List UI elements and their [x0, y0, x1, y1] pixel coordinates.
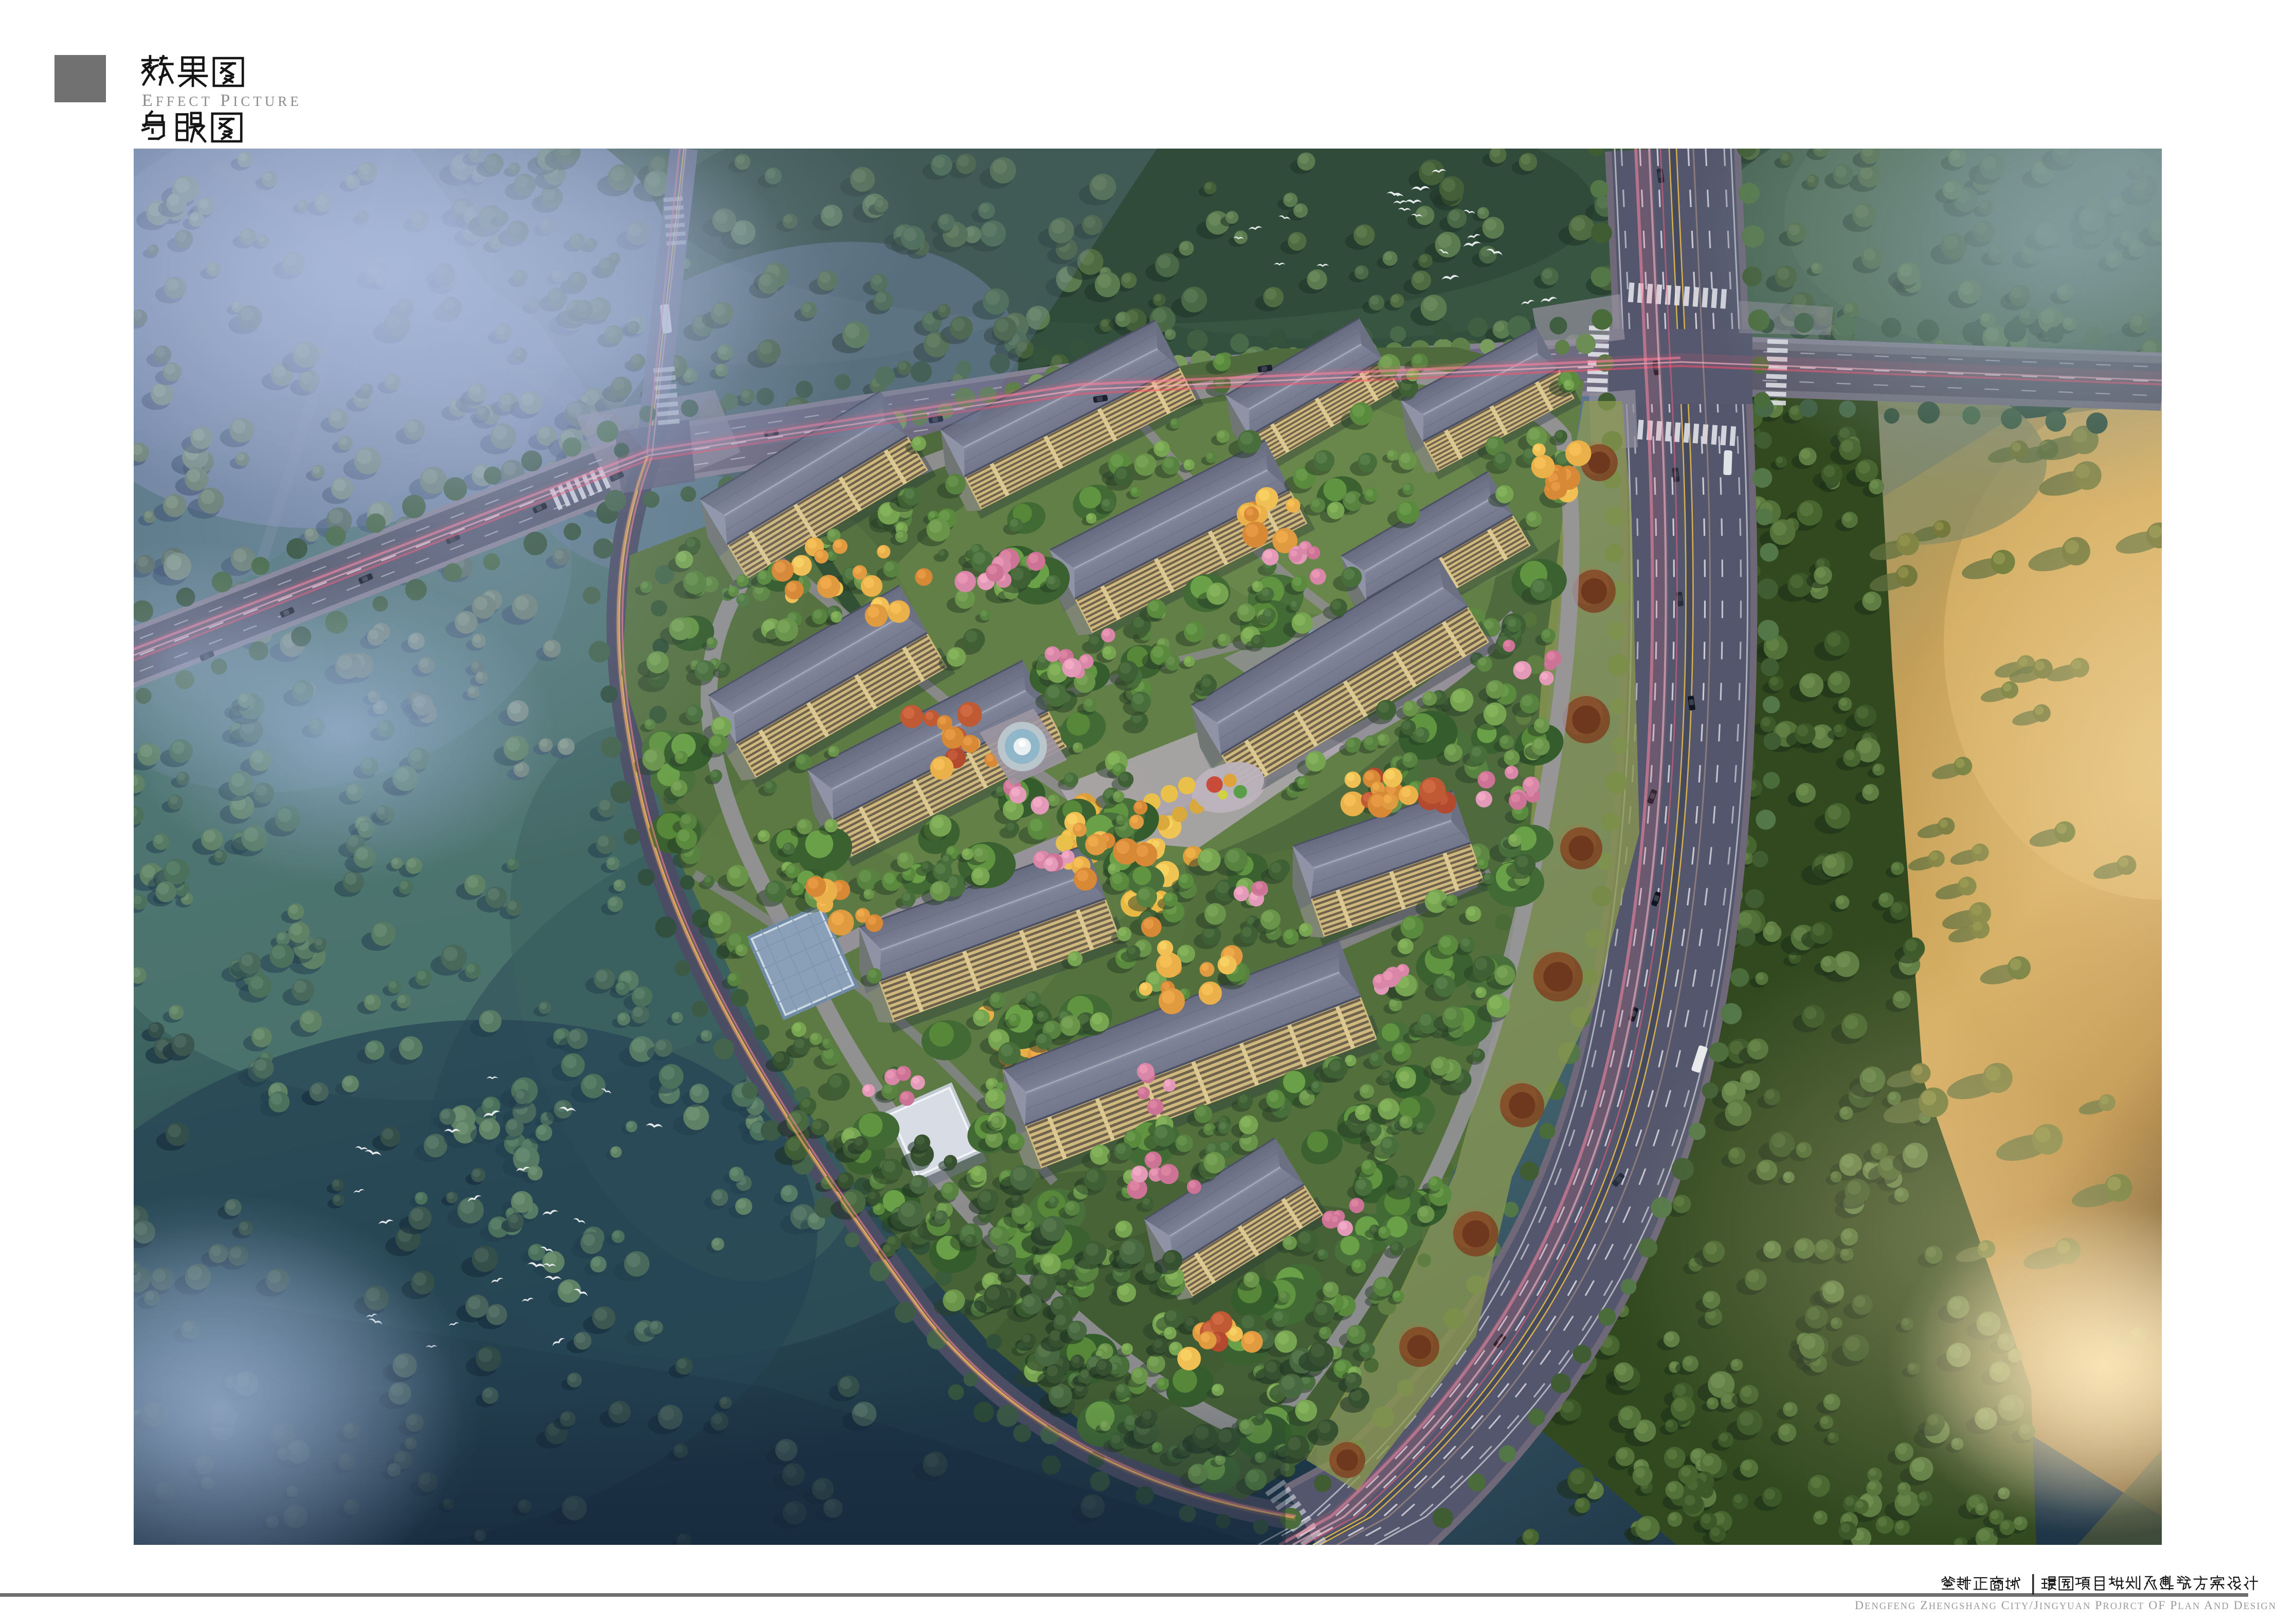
svg-text:EFFECT PICTURE: EFFECT PICTURE — [142, 91, 302, 110]
